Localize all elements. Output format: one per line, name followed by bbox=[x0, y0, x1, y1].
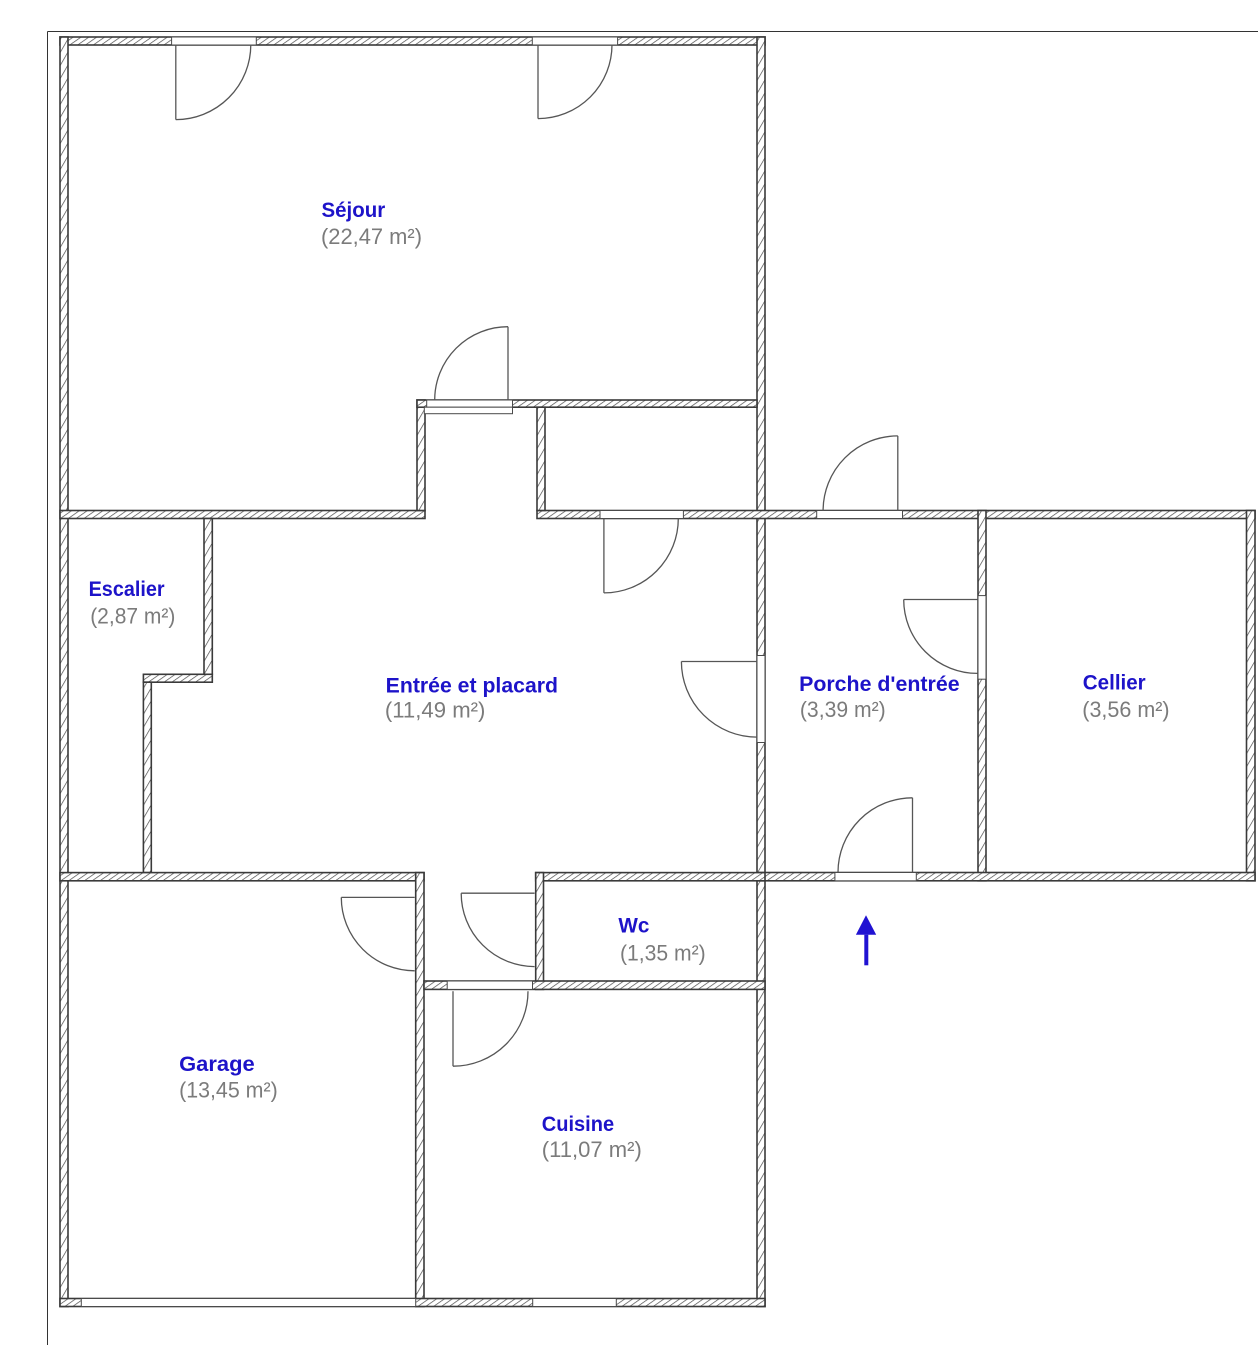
svg-text:(11,07 m²): (11,07 m²) bbox=[542, 1137, 642, 1162]
svg-text:(22,47 m²): (22,47 m²) bbox=[321, 224, 422, 249]
svg-text:(2,87 m²): (2,87 m²) bbox=[90, 603, 175, 628]
svg-text:Wc: Wc bbox=[618, 914, 649, 937]
svg-text:(3,56 m²): (3,56 m²) bbox=[1082, 697, 1169, 722]
svg-text:(3,39 m²): (3,39 m²) bbox=[800, 697, 886, 722]
svg-text:Entrée et placard: Entrée et placard bbox=[386, 674, 558, 697]
svg-text:Séjour: Séjour bbox=[322, 199, 386, 222]
svg-text:(11,49 m²): (11,49 m²) bbox=[385, 698, 486, 723]
svg-text:Cellier: Cellier bbox=[1083, 672, 1146, 695]
svg-text:(13,45 m²): (13,45 m²) bbox=[179, 1077, 278, 1102]
svg-text:Porche d'entrée: Porche d'entrée bbox=[799, 673, 960, 696]
svg-text:(1,35 m²): (1,35 m²) bbox=[620, 941, 706, 966]
svg-text:Cuisine: Cuisine bbox=[542, 1113, 614, 1136]
svg-text:Escalier: Escalier bbox=[89, 578, 165, 601]
svg-text:Garage: Garage bbox=[179, 1053, 255, 1076]
